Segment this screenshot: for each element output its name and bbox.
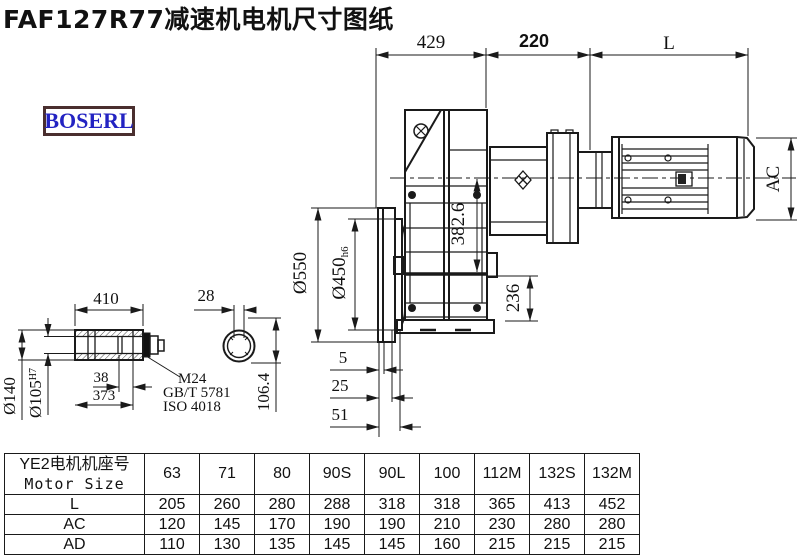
dim-label-25: 25: [332, 376, 349, 395]
table-header-cn: YE2电机机座号: [5, 455, 144, 474]
column-header: 90S: [310, 454, 365, 495]
table-cell: 215: [475, 535, 530, 555]
dim-label-51: 51: [332, 405, 349, 424]
table-cell: 145: [200, 515, 255, 535]
column-header: 132M: [585, 454, 640, 495]
table-header-motor-size: YE2电机机座号 Motor Size: [5, 454, 145, 495]
dim-label-450-main: Ø450: [329, 257, 350, 299]
table-cell: 230: [475, 515, 530, 535]
table-row: AC 120 145 170 190 190 210 230 280 280: [5, 515, 640, 535]
m24-leader-line: [146, 356, 180, 377]
dim-label-373: 373: [93, 388, 116, 404]
table-cell: 145: [310, 535, 365, 555]
table-cell: 135: [255, 535, 310, 555]
shaft-section-circle: [224, 331, 255, 362]
dim-label-450-suffix: h6: [339, 246, 351, 258]
table-cell: 280: [530, 515, 585, 535]
dim-label-AC: AC: [763, 166, 784, 192]
dim-label-38: 38: [94, 370, 109, 386]
row-label: AC: [5, 515, 145, 535]
table-cell: 130: [200, 535, 255, 555]
output-flange-outline: [378, 208, 405, 342]
table-cell: 190: [365, 515, 420, 535]
table-header-en: Motor Size: [5, 475, 144, 493]
column-header: 90L: [365, 454, 420, 495]
dim-label-106: 106.4: [254, 372, 273, 411]
table-cell: 215: [530, 535, 585, 555]
motor-terminal-box: [676, 172, 692, 186]
dim-label-220: 220: [519, 31, 549, 51]
table-cell: 190: [310, 515, 365, 535]
table-cell: 260: [200, 495, 255, 515]
dim-label-450: Ø450h6: [329, 246, 351, 300]
table-cell: 210: [420, 515, 475, 535]
dim-label-5: 5: [339, 348, 348, 367]
gearbox-housing-ribs: [405, 150, 487, 330]
table-cell: 145: [365, 535, 420, 555]
dim-label-236: 236: [503, 284, 524, 313]
dim-label-L: L: [663, 33, 675, 54]
drawing-page: { "title": "FAF127R77减速机电机尺寸图纸", "logo":…: [0, 0, 800, 557]
dim-label-28: 28: [198, 286, 215, 305]
dim-label-105-sup: H7: [28, 368, 39, 380]
leader-label-iso: ISO 4018: [163, 399, 221, 415]
adapter-bolt-icon: [515, 171, 531, 189]
dim-label-410: 410: [93, 289, 119, 308]
column-header: 112M: [475, 454, 530, 495]
dim-label-550: Ø550: [290, 252, 311, 294]
table-cell: 280: [585, 515, 640, 535]
row-label: AD: [5, 535, 145, 555]
table-cell: 413: [530, 495, 585, 515]
table-cell: 110: [145, 535, 200, 555]
column-header: 63: [145, 454, 200, 495]
table-cell: 318: [365, 495, 420, 515]
column-header: 132S: [530, 454, 585, 495]
dim-label-429: 429: [417, 32, 446, 53]
column-header: 100: [420, 454, 475, 495]
table-cell: 280: [255, 495, 310, 515]
table-cell: 170: [255, 515, 310, 535]
gearbox-dimension-drawing: 429 220 L AC Ø550 Ø450h6 382.6 236: [0, 0, 800, 450]
table-header-row: YE2电机机座号 Motor Size 63 71 80 90S 90L 100…: [5, 454, 640, 495]
table-row: L 205 260 280 288 318 318 365 413 452: [5, 495, 640, 515]
table-cell: 452: [585, 495, 640, 515]
motor-size-table: YE2电机机座号 Motor Size 63 71 80 90S 90L 100…: [4, 453, 640, 555]
table-cell: 160: [420, 535, 475, 555]
table-cell: 318: [420, 495, 475, 515]
column-header: 71: [200, 454, 255, 495]
table-cell: 120: [145, 515, 200, 535]
dim-label-105-main: Ø105: [26, 380, 45, 418]
table-cell: 215: [585, 535, 640, 555]
row-label: L: [5, 495, 145, 515]
dim-label-140: Ø140: [0, 377, 19, 415]
table-cell: 205: [145, 495, 200, 515]
dim-label-382: 382.6: [448, 203, 469, 246]
table-row: AD 110 130 135 145 145 160 215 215 215: [5, 535, 640, 555]
motor-tie-rod-dots: [625, 155, 671, 203]
motor-fins: [622, 144, 708, 214]
dim-label-105: Ø105H7: [26, 368, 45, 418]
column-header: 80: [255, 454, 310, 495]
table-cell: 288: [310, 495, 365, 515]
motor-adapter-outline: [490, 130, 612, 243]
table-cell: 365: [475, 495, 530, 515]
housing-bolt-icon: [414, 124, 428, 138]
